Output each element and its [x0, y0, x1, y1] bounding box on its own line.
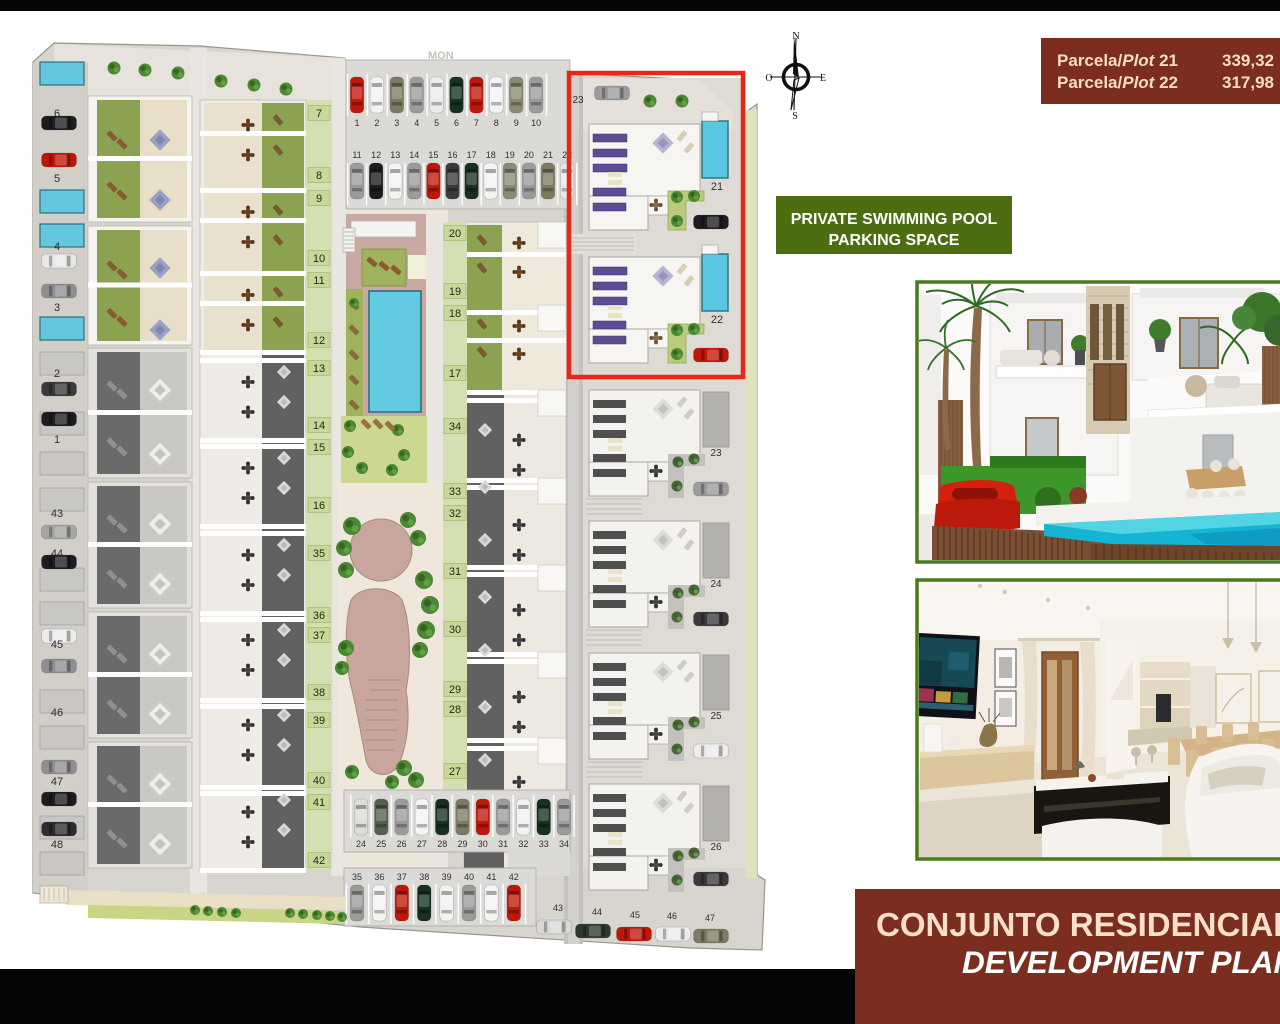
svg-text:15: 15 [428, 150, 438, 160]
svg-text:21: 21 [543, 150, 553, 160]
svg-text:34: 34 [559, 839, 569, 849]
svg-text:25: 25 [376, 839, 386, 849]
svg-text:13: 13 [390, 150, 400, 160]
svg-text:33: 33 [539, 839, 549, 849]
svg-text:20: 20 [524, 150, 534, 160]
svg-text:5: 5 [434, 118, 439, 128]
svg-text:1: 1 [54, 434, 60, 446]
svg-text:16: 16 [447, 150, 457, 160]
svg-text:25: 25 [710, 711, 722, 722]
svg-text:9: 9 [316, 193, 322, 205]
svg-text:36: 36 [313, 610, 325, 622]
svg-text:47: 47 [705, 913, 715, 923]
svg-text:42: 42 [509, 872, 519, 882]
svg-text:28: 28 [449, 704, 461, 716]
svg-text:46: 46 [667, 911, 677, 921]
svg-text:28: 28 [437, 839, 447, 849]
svg-text:10: 10 [313, 253, 325, 265]
svg-text:1: 1 [354, 118, 359, 128]
svg-text:45: 45 [630, 910, 640, 920]
svg-text:18: 18 [486, 150, 496, 160]
svg-text:36: 36 [374, 872, 384, 882]
svg-text:41: 41 [486, 872, 496, 882]
svg-text:17: 17 [467, 150, 477, 160]
svg-text:11: 11 [313, 275, 324, 287]
svg-text:12: 12 [371, 150, 381, 160]
svg-text:S: S [792, 111, 798, 122]
svg-text:45: 45 [51, 639, 63, 651]
svg-text:37: 37 [397, 872, 407, 882]
svg-text:40: 40 [464, 872, 474, 882]
svg-text:19: 19 [505, 150, 515, 160]
svg-text:4: 4 [54, 241, 60, 253]
svg-text:38: 38 [419, 872, 429, 882]
svg-text:14: 14 [313, 420, 325, 432]
svg-text:DEVELOPMENT PLAN: DEVELOPMENT PLAN [962, 944, 1280, 980]
svg-text:29: 29 [457, 839, 467, 849]
svg-text:31: 31 [449, 566, 461, 578]
svg-text:13: 13 [313, 363, 325, 375]
svg-text:8: 8 [316, 170, 322, 182]
svg-text:6: 6 [454, 118, 459, 128]
svg-text:32: 32 [518, 839, 528, 849]
svg-text:33: 33 [449, 486, 461, 498]
svg-text:27: 27 [417, 839, 427, 849]
svg-text:8: 8 [494, 118, 499, 128]
svg-text:26: 26 [710, 842, 722, 853]
svg-text:44: 44 [592, 907, 602, 917]
svg-text:317,98: 317,98 [1222, 73, 1274, 92]
svg-text:24: 24 [356, 839, 366, 849]
svg-text:38: 38 [313, 687, 325, 699]
svg-text:39: 39 [313, 715, 325, 727]
svg-text:44: 44 [51, 548, 63, 560]
svg-text:21: 21 [711, 181, 723, 193]
svg-text:PRIVATE SWIMMING POOL: PRIVATE SWIMMING POOL [791, 211, 998, 228]
svg-text:37: 37 [313, 630, 325, 642]
svg-text:Parcela/Plot 21: Parcela/Plot 21 [1057, 51, 1178, 70]
svg-text:7: 7 [316, 108, 322, 120]
svg-text:Parcela/Plot 22: Parcela/Plot 22 [1057, 73, 1178, 92]
svg-text:6: 6 [54, 108, 60, 120]
svg-text:40: 40 [313, 775, 325, 787]
svg-text:11: 11 [352, 150, 361, 160]
svg-text:43: 43 [553, 903, 563, 913]
svg-text:2: 2 [54, 368, 60, 380]
svg-text:339,32: 339,32 [1222, 51, 1274, 70]
svg-text:20: 20 [449, 228, 461, 240]
svg-text:O: O [765, 73, 772, 84]
svg-text:41: 41 [313, 797, 325, 809]
svg-text:18: 18 [449, 308, 461, 320]
svg-text:14: 14 [409, 150, 419, 160]
svg-text:30: 30 [478, 839, 488, 849]
svg-text:47: 47 [51, 776, 63, 788]
svg-text:3: 3 [394, 118, 399, 128]
svg-text:22: 22 [711, 314, 723, 326]
svg-text:39: 39 [442, 872, 452, 882]
svg-text:31: 31 [498, 839, 508, 849]
svg-text:7: 7 [474, 118, 479, 128]
svg-text:32: 32 [449, 508, 461, 520]
svg-text:4: 4 [414, 118, 419, 128]
svg-text:5: 5 [54, 173, 60, 185]
svg-text:15: 15 [313, 442, 325, 454]
svg-text:42: 42 [313, 855, 325, 867]
svg-text:35: 35 [352, 872, 362, 882]
svg-text:48: 48 [51, 839, 63, 851]
svg-text:26: 26 [397, 839, 407, 849]
svg-text:30: 30 [449, 624, 461, 636]
svg-text:23: 23 [572, 95, 584, 106]
svg-text:N: N [792, 31, 799, 42]
svg-text:10: 10 [531, 118, 541, 128]
svg-text:43: 43 [51, 508, 63, 520]
svg-text:24: 24 [710, 579, 722, 590]
svg-text:19: 19 [449, 286, 461, 298]
svg-text:12: 12 [313, 335, 325, 347]
svg-text:29: 29 [449, 684, 461, 696]
svg-text:PARKING SPACE: PARKING SPACE [829, 232, 960, 249]
svg-text:23: 23 [710, 448, 722, 459]
svg-text:16: 16 [313, 500, 325, 512]
svg-text:46: 46 [51, 707, 63, 719]
svg-text:CONJUNTO RESIDENCIAL: CONJUNTO RESIDENCIAL [876, 906, 1280, 943]
svg-text:34: 34 [449, 421, 461, 433]
svg-text:3: 3 [54, 302, 60, 314]
svg-text:9: 9 [514, 118, 519, 128]
svg-text:27: 27 [449, 766, 461, 778]
svg-text:35: 35 [313, 548, 325, 560]
svg-text:2: 2 [374, 118, 379, 128]
svg-text:17: 17 [449, 368, 461, 380]
svg-text:E: E [820, 73, 826, 84]
